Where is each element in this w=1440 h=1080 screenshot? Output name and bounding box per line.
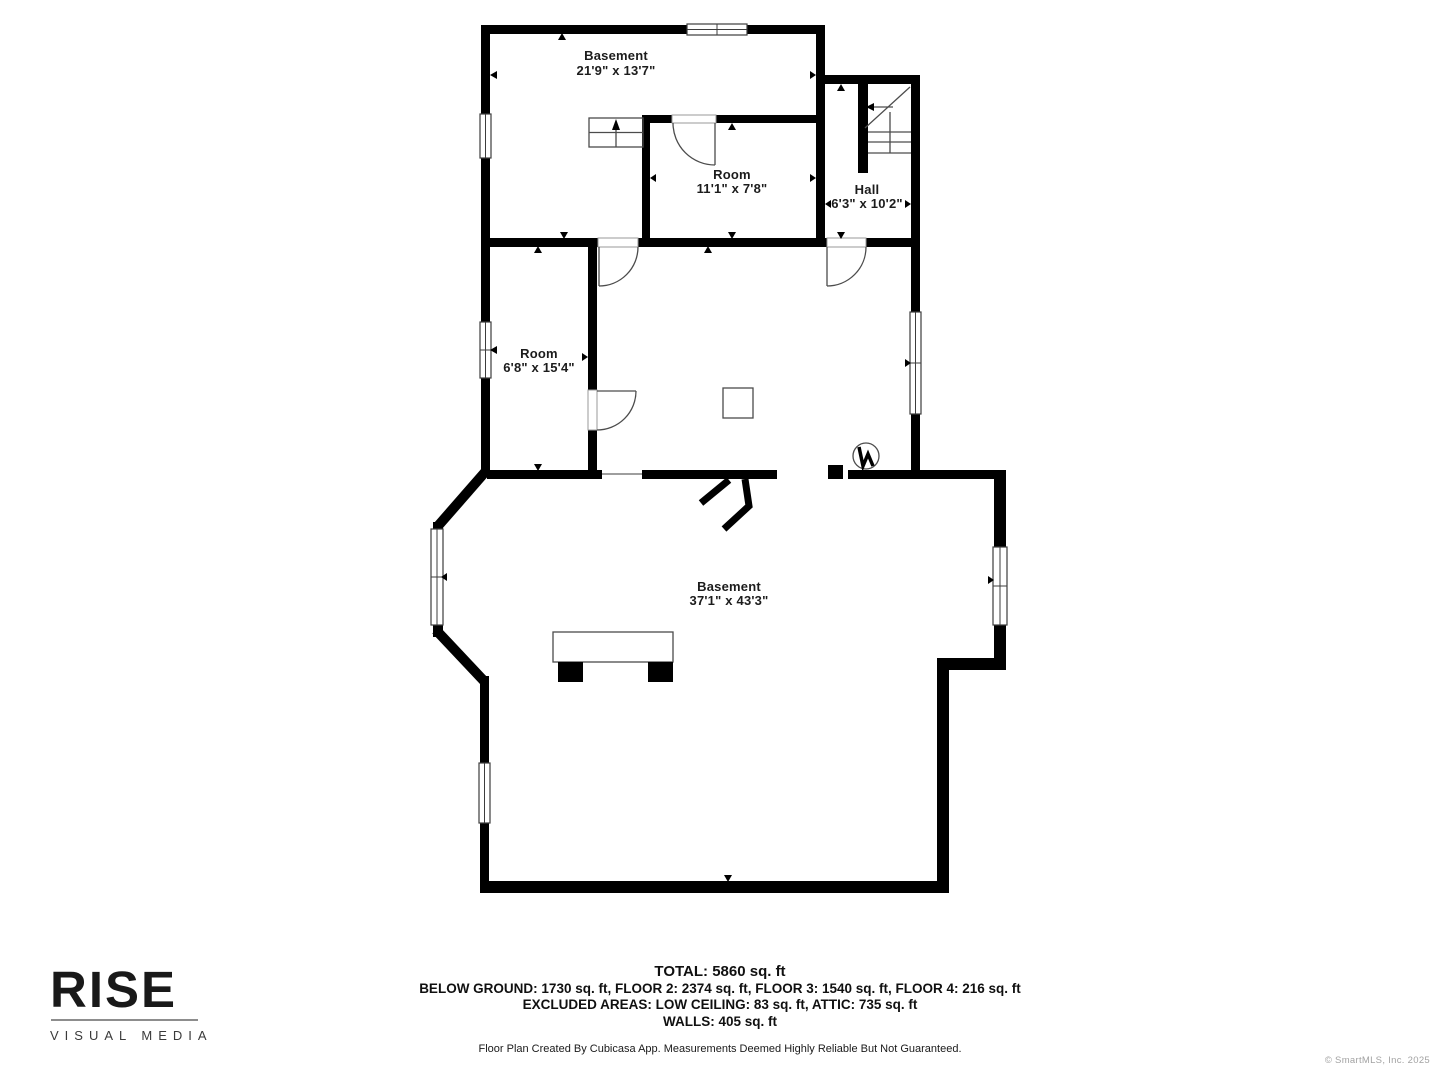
room-name: Basement <box>584 48 648 63</box>
walls-area: WALLS: 405 sq. ft <box>0 1014 1440 1030</box>
excluded-areas: EXCLUDED AREAS: LOW CEILING: 83 sq. ft, … <box>0 997 1440 1013</box>
door-leaf-open <box>701 480 729 503</box>
total-area: TOTAL: 5860 sq. ft <box>0 963 1440 980</box>
measure-tick-icon <box>534 464 542 471</box>
square-fixture-icon <box>723 388 753 418</box>
measure-tick-icon <box>810 71 816 79</box>
walls <box>433 25 1006 893</box>
door-leaf-open <box>724 479 749 529</box>
wall-segment <box>994 470 1006 548</box>
room-name: Basement <box>697 579 761 594</box>
door-frame <box>598 238 638 247</box>
room-dims: 6'3" x 10'2" <box>831 196 903 211</box>
room-dims: 37'1" x 43'3" <box>690 593 769 608</box>
wall-segment <box>848 470 1006 479</box>
measure-tick-icon <box>728 232 736 239</box>
door-swing-arc <box>827 247 866 286</box>
room-dims: 21'9" x 13'7" <box>577 63 656 78</box>
measure-tick-icon <box>810 174 816 182</box>
windows <box>431 24 1007 823</box>
door-frame <box>672 115 716 123</box>
door-frame <box>588 390 597 430</box>
window-icon <box>480 322 491 378</box>
measure-tick-icon <box>582 353 588 361</box>
measure-tick-icon <box>825 200 831 208</box>
logo-wordmark: RISE <box>50 964 213 1015</box>
area-summary: TOTAL: 5860 sq. ft BELOW GROUND: 1730 sq… <box>0 963 1440 1030</box>
measure-tick-icon <box>490 71 497 79</box>
rise-visual-media-logo: RISE VISUAL MEDIA <box>50 964 213 1043</box>
window-icon <box>910 312 921 414</box>
table-leg <box>558 662 583 682</box>
copyright-text: © SmartMLS, Inc. 2025 <box>1325 1055 1430 1066</box>
wall-segment <box>816 25 825 247</box>
door-swing-arc <box>599 247 638 286</box>
water-heater-icon <box>853 443 879 469</box>
measure-tick-icon <box>728 123 736 130</box>
door-icon <box>598 238 638 286</box>
door-swing-arc <box>673 123 715 165</box>
logo-tagline: VISUAL MEDIA <box>50 1028 213 1043</box>
wall-segment <box>588 247 597 473</box>
window-icon <box>480 114 491 158</box>
wall-segment <box>937 658 949 893</box>
room-name: Hall <box>855 182 880 197</box>
wall-segment <box>858 84 868 173</box>
room-name: Room <box>520 346 558 361</box>
wall-segment <box>642 115 825 123</box>
room-name: Room <box>713 167 751 182</box>
door-frame <box>827 238 866 247</box>
table-leg <box>648 662 673 682</box>
wall-segment <box>481 25 825 34</box>
window-icon <box>687 24 747 35</box>
measure-tick-icon <box>837 84 845 91</box>
water-heater-zigzag <box>859 447 873 466</box>
room-dims: 11'1" x 7'8" <box>697 181 768 196</box>
wall-segment <box>825 75 920 84</box>
floorplan-svg: Basement 21'9" x 13'7" Room 11'1" x 7'8"… <box>0 0 1440 940</box>
measure-tick-icon <box>534 246 542 253</box>
door-icon <box>588 390 636 430</box>
measure-tick-icon <box>704 246 712 253</box>
door-icon <box>827 238 866 286</box>
wall-post <box>828 465 843 479</box>
logo-divider <box>51 1019 198 1021</box>
wall-segment <box>481 25 490 474</box>
wall-segment <box>480 881 949 893</box>
table-top <box>553 632 673 662</box>
wall-segment <box>642 470 777 479</box>
measure-tick-icon <box>650 174 656 182</box>
wall-segment <box>487 470 602 479</box>
double-door-open-icon <box>701 479 749 529</box>
measure-tick-icon <box>560 232 568 239</box>
stairs-up-arrow-icon <box>612 119 620 130</box>
wall-chamfer <box>436 630 484 681</box>
page: { "floorplan": { "rooms": [ {"name": "Ba… <box>0 0 1440 1080</box>
room-dims: 6'8" x 15'4" <box>503 360 575 375</box>
wall-chamfer <box>438 471 486 526</box>
floor-areas: BELOW GROUND: 1730 sq. ft, FLOOR 2: 2374… <box>0 981 1440 997</box>
door-icon <box>672 115 716 165</box>
door-swing-arc <box>597 391 636 430</box>
measure-tick-icon <box>724 875 732 882</box>
measure-tick-icon <box>905 200 911 208</box>
window-icon <box>479 763 490 823</box>
disclaimer-text: Floor Plan Created By Cubicasa App. Meas… <box>0 1043 1440 1055</box>
window-icon <box>993 547 1007 625</box>
measure-tick-icon <box>558 33 566 40</box>
stairs-icon <box>865 87 911 153</box>
room-labels: Basement 21'9" x 13'7" Room 11'1" x 7'8"… <box>503 48 903 608</box>
stairs-icon <box>589 118 643 147</box>
table-furniture-icon <box>553 632 673 682</box>
